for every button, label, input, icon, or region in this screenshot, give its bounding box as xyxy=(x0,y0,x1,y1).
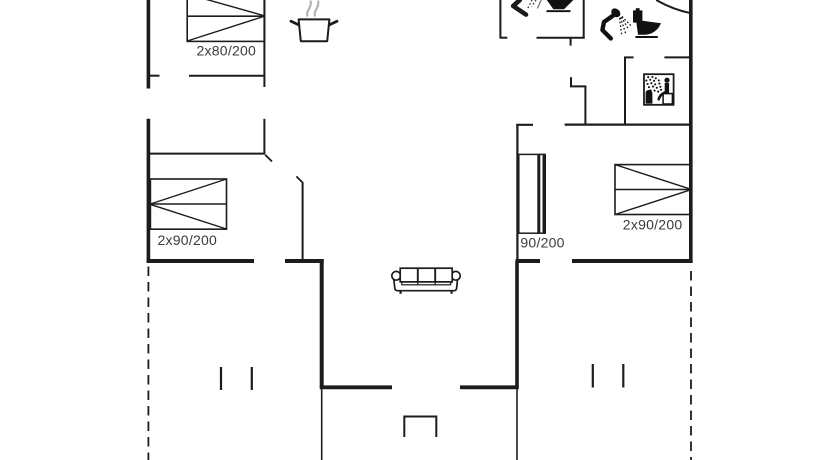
svg-text:2x80/200: 2x80/200 xyxy=(196,42,256,58)
svg-text:2x90/200: 2x90/200 xyxy=(157,232,217,248)
svg-text:90/200: 90/200 xyxy=(520,235,564,251)
svg-text:2x90/200: 2x90/200 xyxy=(623,217,683,233)
